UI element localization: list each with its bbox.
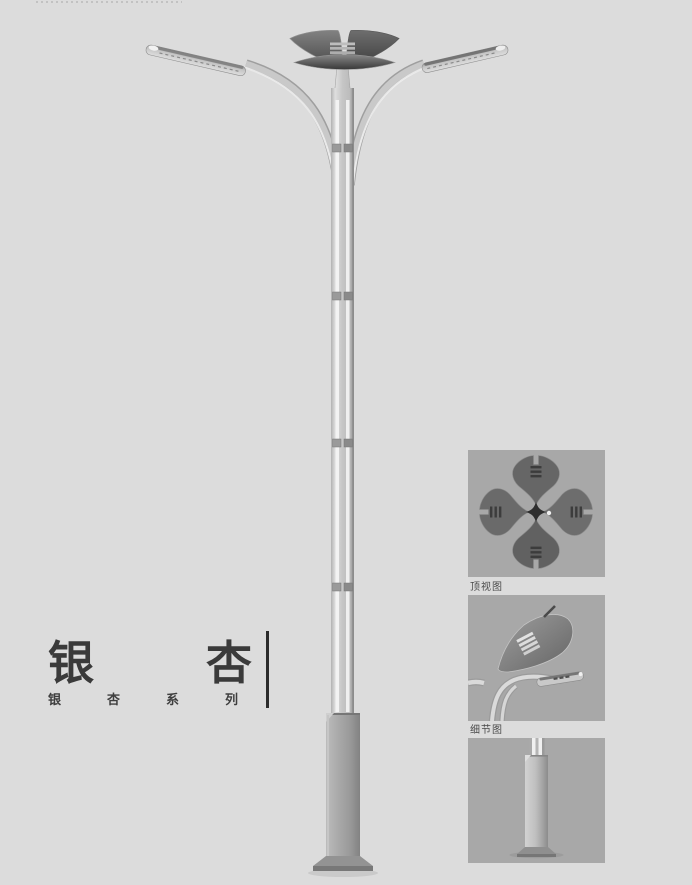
- lamp-pole: [331, 88, 354, 715]
- crown-collar-fin: [294, 55, 395, 70]
- lamp-arm-left: [243, 64, 338, 185]
- panel-detail-view: 细节图: [468, 595, 605, 738]
- series-subtitle: 银 杏 系 列: [48, 693, 238, 706]
- base-view-figure: [468, 738, 605, 863]
- detail-panels: 顶视图: [468, 450, 605, 863]
- series-char-1: 银: [48, 693, 61, 706]
- ginkgo-crown: [290, 30, 399, 69]
- title-char-2: 杏: [206, 640, 252, 686]
- series-char-3: 系: [166, 693, 179, 706]
- lamp-base-column: [326, 713, 360, 859]
- panel-top-view: 顶视图: [468, 450, 605, 595]
- series-char-2: 杏: [107, 693, 120, 706]
- lamp-arm-right: [350, 64, 427, 185]
- lamp-head-left: [145, 44, 247, 77]
- detail-view-label: 细节图: [468, 721, 605, 738]
- series-char-4: 列: [225, 693, 238, 706]
- panel-base-view: [468, 738, 605, 863]
- lamp-head-right: [421, 44, 509, 74]
- base-view-column: [525, 755, 548, 849]
- title-divider-rule: [266, 631, 269, 708]
- detail-view-figure: [468, 595, 605, 721]
- title-char-1: 银: [48, 640, 94, 686]
- catalog-page: 银 杏 银 杏 系 列: [0, 0, 692, 885]
- lamp-base-plate: [308, 856, 378, 877]
- top-view-highlight-dot: [547, 511, 551, 515]
- product-title: 银 杏: [48, 640, 252, 686]
- top-view-label: 顶视图: [468, 577, 605, 595]
- top-view-figure: [468, 450, 605, 577]
